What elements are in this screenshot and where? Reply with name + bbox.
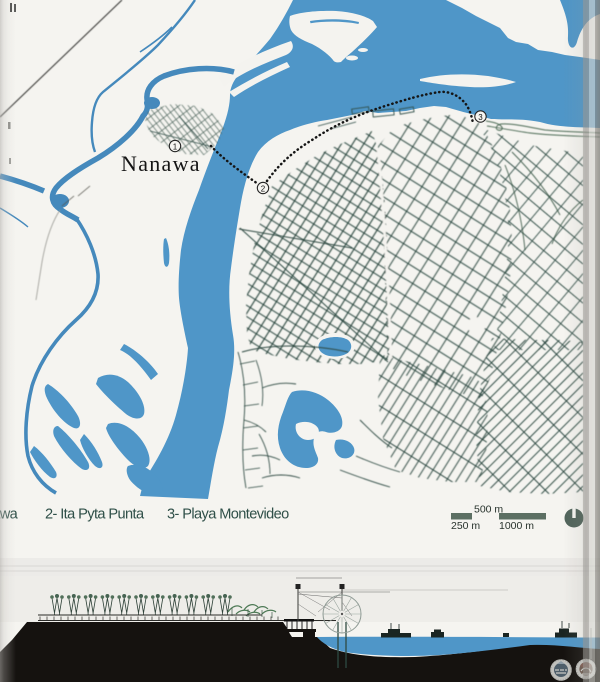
svg-text:2: 2: [261, 184, 266, 193]
svg-text:2- Ita Pyta Punta: 2- Ita Pyta Punta: [45, 507, 145, 523]
svg-text:3- Playa Montevideo: 3- Playa Montevideo: [167, 507, 289, 523]
svg-text:1000 m: 1000 m: [499, 520, 534, 532]
svg-text:Nanawa: Nanawa: [121, 151, 201, 176]
svg-text:3: 3: [478, 113, 483, 122]
svg-text:250 m: 250 m: [451, 520, 480, 532]
